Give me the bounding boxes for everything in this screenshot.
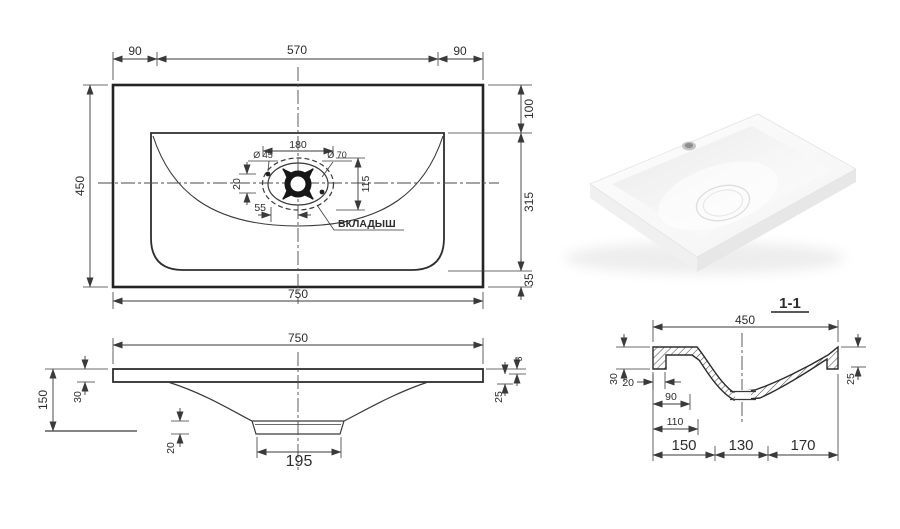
dia-label-70: Ø 70 — [327, 150, 347, 160]
dim-label-5: 5 — [514, 356, 524, 361]
dim-label-195: 195 — [286, 453, 313, 470]
overflow-hole-dot — [266, 172, 271, 177]
front-dim-height: 150 — [36, 369, 137, 431]
dim-label-20-front: 20 — [165, 442, 177, 454]
dim-label-25-front: 25 — [493, 391, 505, 403]
plan-dim-width: 750 — [113, 287, 483, 309]
washbasin-drawing: 180 Ø 45 Ø 70 115 20 — [0, 0, 900, 529]
dim-label-20-plan: 20 — [231, 178, 243, 190]
drain-ring — [288, 174, 309, 195]
front-view: 750 150 30 20 195 — [36, 331, 526, 470]
dim-label-150-front: 150 — [36, 390, 50, 410]
plan-insert-callout: ВКЛАДЫШ — [317, 205, 404, 230]
dim-label-55: 55 — [254, 202, 266, 214]
front-dim-right-edge: 5 25 — [486, 356, 526, 402]
dim-label-25-section: 25 — [845, 373, 857, 385]
front-dim-drain-width: 195 — [257, 437, 341, 470]
dim-label-750-front: 750 — [288, 331, 308, 345]
technical-drawing-canvas: 180 Ø 45 Ø 70 115 20 — [0, 0, 900, 529]
dim-label-90-section: 90 — [665, 391, 677, 403]
dim-label-570: 570 — [287, 43, 307, 57]
section-dim-right-edge: 25 — [841, 334, 866, 385]
insert-callout-label: ВКЛАДЫШ — [338, 218, 396, 230]
section-dim-rim-width: 20 — [622, 372, 681, 389]
section-dim-110: 110 — [653, 416, 698, 435]
render-faucet-hole-inner — [685, 143, 693, 148]
dim-label-90-right: 90 — [453, 44, 467, 58]
plan-view: 180 Ø 45 Ø 70 115 20 — [73, 43, 536, 309]
front-dim-edge: 30 — [72, 356, 95, 403]
front-dim-bottom-offset: 20 — [165, 408, 189, 454]
dim-label-20-section: 20 — [622, 377, 634, 389]
dim-label-450-plan: 450 — [73, 176, 87, 196]
dim-label-30-front: 30 — [72, 391, 84, 403]
render-3d — [565, 114, 856, 274]
dim-label-100: 100 — [522, 99, 536, 119]
dim-label-115: 115 — [360, 175, 372, 192]
plan-dim-insert-height: 115 — [336, 158, 372, 210]
plan-dim-depth: 450 — [73, 85, 108, 287]
drain-hole-dot — [320, 190, 325, 195]
section-title: 1-1 — [779, 295, 801, 312]
dim-label-170: 170 — [790, 437, 815, 454]
dim-label-110: 110 — [667, 416, 684, 428]
dim-label-35: 35 — [522, 273, 536, 287]
dim-label-130: 130 — [728, 437, 753, 454]
plan-basin-rim — [151, 133, 444, 270]
dim-label-450-section: 450 — [735, 313, 755, 327]
dim-label-180: 180 — [289, 139, 307, 151]
section-dim-depth: 450 — [653, 313, 838, 342]
plan-dim-vertical-offset: 20 — [231, 162, 256, 205]
dim-label-315: 315 — [522, 192, 536, 212]
dim-label-150-section: 150 — [671, 437, 696, 454]
section-view: 1-1 450 30 20 — [608, 295, 866, 461]
plan-dim-right: 100 315 35 — [448, 85, 536, 300]
dim-label-90-left: 90 — [128, 44, 142, 58]
dim-label-750-plan: 750 — [288, 287, 308, 301]
dia-label-45: Ø 45 — [253, 150, 273, 160]
dim-label-30-section: 30 — [608, 373, 620, 385]
